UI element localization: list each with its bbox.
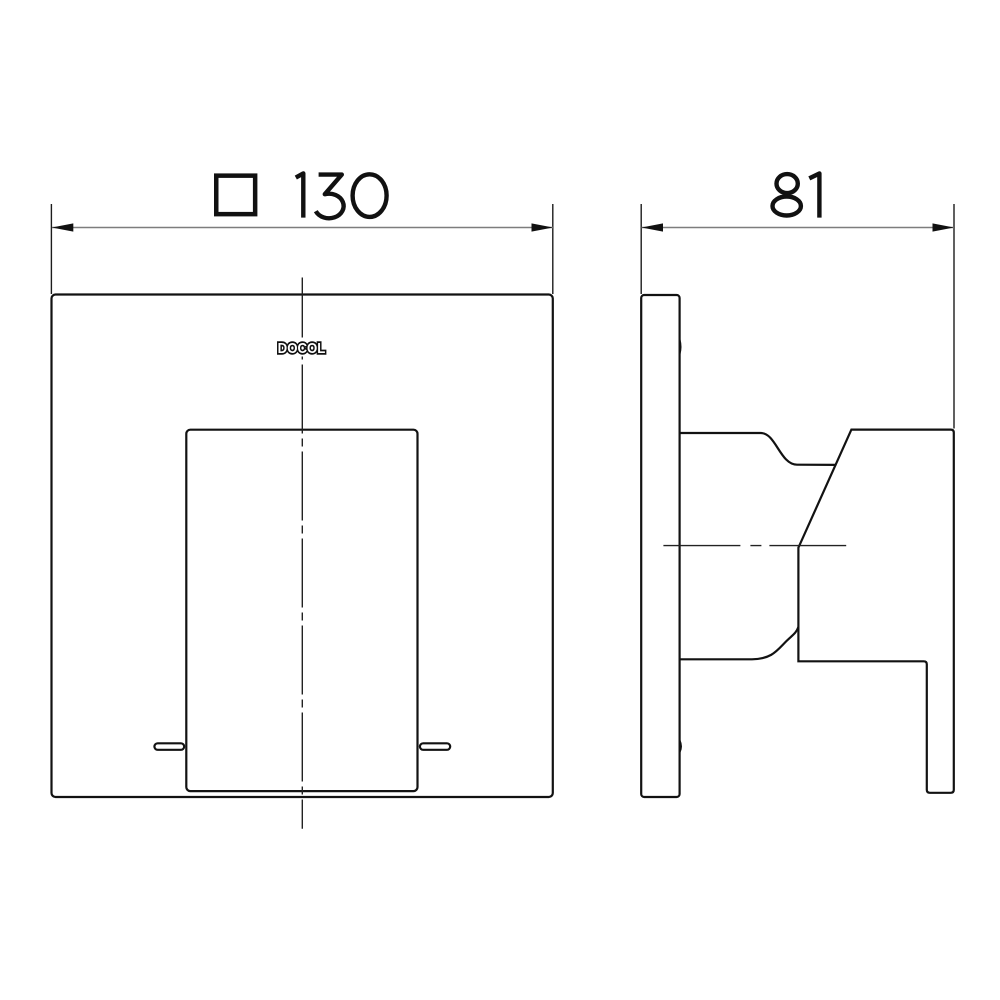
svg-text:DOCOL: DOCOL xyxy=(278,340,326,357)
